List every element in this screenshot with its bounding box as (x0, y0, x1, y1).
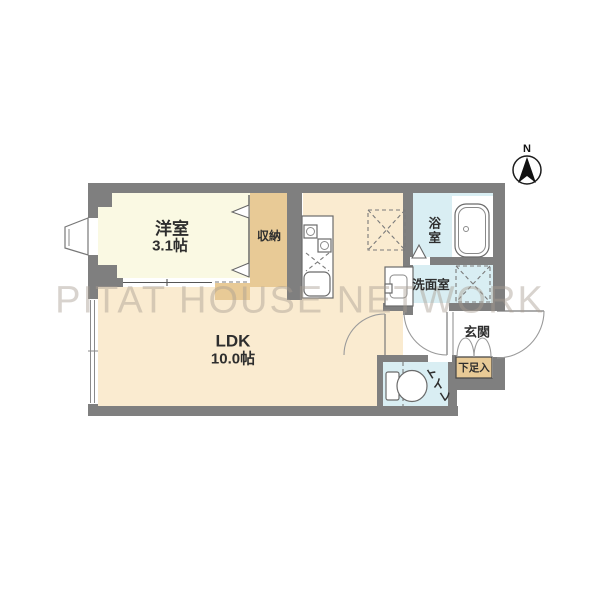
floor-plan-page: PITAT HOUSE NETWORK 洋室 3.1帖 LDK 10.0帖 収納… (0, 0, 600, 600)
closet-label: 収納 (257, 230, 281, 242)
entrance-label: 玄関 (464, 326, 490, 339)
shoe-cabinet-door-arc (457, 338, 474, 357)
western-room-label: 洋室 (155, 221, 189, 238)
bathroom-label: 浴室 (427, 217, 440, 246)
shoe-cabinet-door-arc (474, 338, 491, 357)
stove-burner-icon (304, 225, 317, 238)
western-room-size: 3.1帖 (152, 239, 188, 254)
stove-burner-icon (318, 239, 331, 252)
bathtub-icon (455, 204, 489, 257)
bay-window (65, 218, 88, 255)
shoe-cabinet-label: 下足入 (458, 363, 490, 374)
washroom-label: 洗面室 (412, 279, 450, 292)
watermark-text: PITAT HOUSE NETWORK (55, 280, 545, 323)
ldk-label: LDK (216, 333, 251, 350)
north-label: N (523, 143, 531, 155)
north-compass-icon (513, 156, 541, 184)
ldk-size: 10.0帖 (211, 352, 255, 367)
